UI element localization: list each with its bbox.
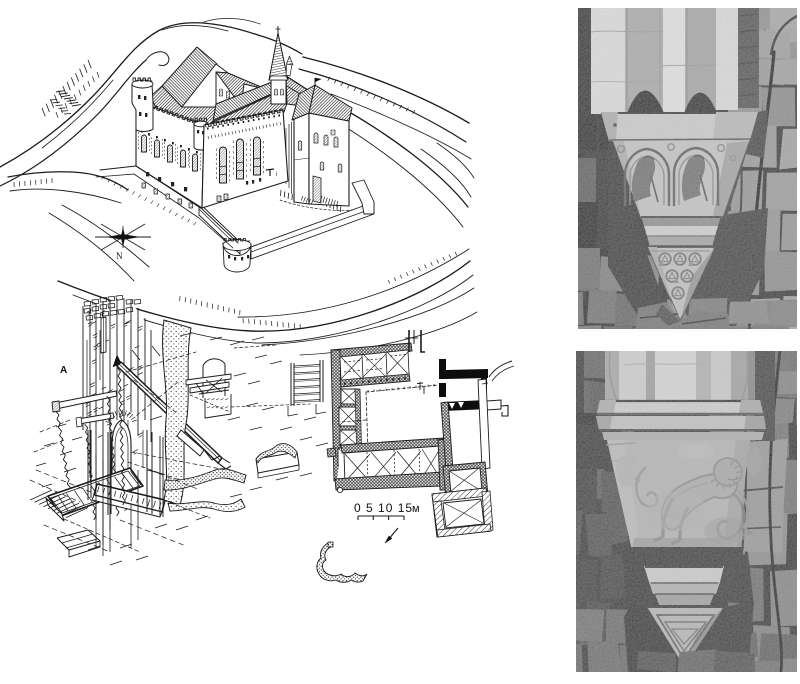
svg-text:i: i bbox=[276, 172, 277, 178]
svg-text:м: м bbox=[412, 503, 420, 515]
svg-text:0 5 10 15: 0 5 10 15 bbox=[354, 501, 413, 515]
svg-text:A: A bbox=[60, 365, 67, 376]
svg-text:N: N bbox=[116, 251, 123, 261]
